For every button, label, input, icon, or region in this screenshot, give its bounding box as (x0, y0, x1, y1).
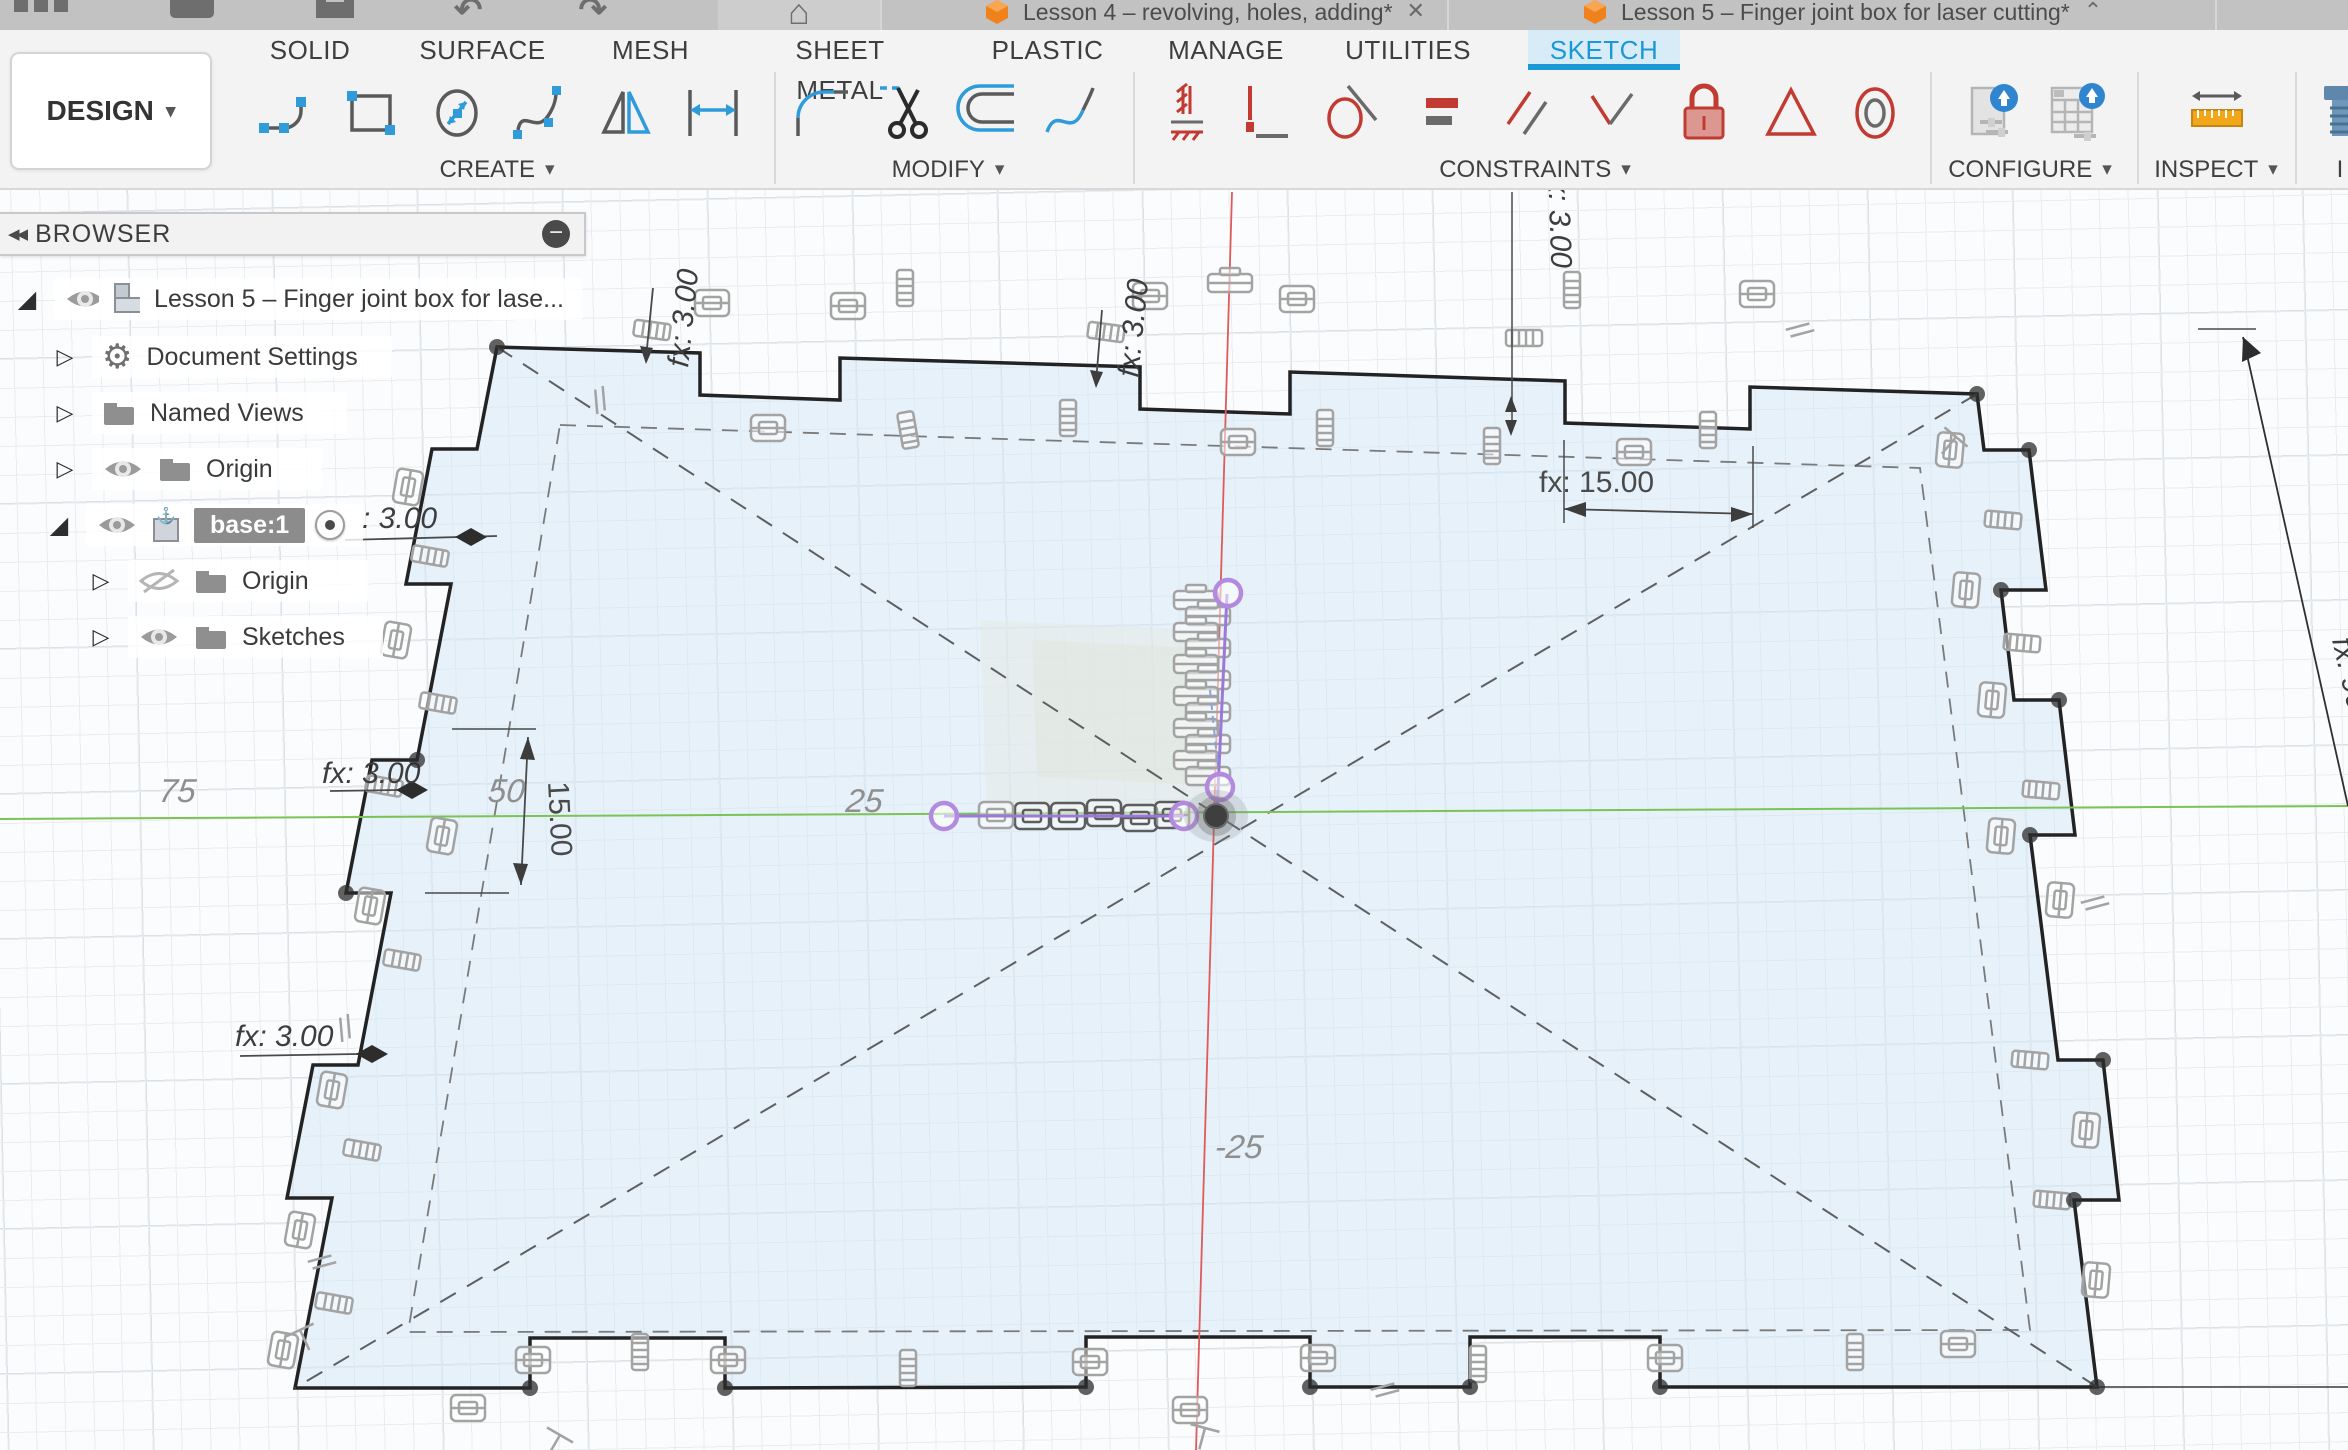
gear-icon: ⚙ (102, 340, 132, 374)
break-curve-icon[interactable] (1037, 80, 1103, 146)
browser-row-base-origin[interactable]: ▷ Origin (88, 560, 368, 602)
line-tool-icon[interactable] (254, 80, 320, 146)
document-icon (1583, 0, 1607, 25)
caret-down-icon: ▾ (166, 100, 176, 123)
eye-icon[interactable] (96, 510, 138, 540)
configure-group-label[interactable]: CONFIGURE▾ (1930, 154, 2130, 186)
row-label: Named Views (150, 399, 304, 428)
tab-plastic[interactable]: PLASTIC (990, 30, 1105, 70)
browser-row-base-component[interactable]: ◢ ⚓ base:1 (46, 504, 363, 546)
group-divider (774, 72, 776, 184)
tab-solid[interactable]: SOLID (255, 30, 365, 70)
expand-icon[interactable]: ◢ (46, 511, 72, 540)
browser-header[interactable]: ◀◀ BROWSER − (0, 212, 586, 256)
inspect-group-label[interactable]: INSPECT▾ (2126, 154, 2306, 186)
root-label: Lesson 5 – Finger joint box for lase... (154, 285, 564, 314)
tab-mesh[interactable]: MESH (603, 30, 698, 70)
sketch-geometry: fx: 3.00 fx: 3.00 fx: 3.00 fx: 15.00 fx (0, 190, 2348, 1450)
component-icon (113, 282, 140, 316)
ribbon-toolbar: SOLID SURFACE MESH SHEET METAL PLASTIC M… (0, 30, 2348, 190)
redo-icon[interactable]: ↷ (579, 0, 608, 30)
browser-row-document-settings[interactable]: ▷ ⚙ Document Settings (52, 336, 392, 378)
save-icon[interactable] (312, 0, 358, 30)
svg-text:⚓: ⚓ (156, 507, 176, 525)
configuration-table-icon[interactable] (2044, 80, 2110, 146)
document-tab-lesson4[interactable]: Lesson 4 – revolving, holes, adding* ✕ (985, 0, 1435, 30)
modify-group-label[interactable]: MODIFY▾ (848, 154, 1048, 186)
group-label-text: CONFIGURE (1948, 154, 2092, 186)
caret-down-icon: ▾ (2268, 154, 2278, 186)
group-label-text: MODIFY (892, 154, 985, 186)
browser-row-named-views[interactable]: ▷ Named Views (52, 392, 347, 434)
sketch-canvas-viewport[interactable]: fx: 3.00 fx: 3.00 fx: 3.00 fx: 15.00 fx (0, 190, 2348, 1450)
lock-constraint-icon[interactable] (1672, 80, 1738, 146)
offset-tool-icon[interactable] (956, 80, 1022, 146)
group-label-text: CREATE (439, 154, 535, 186)
spline-tool-icon[interactable] (508, 80, 574, 146)
folder-icon (194, 567, 228, 595)
folder-icon (158, 455, 192, 483)
grid-label-25: 25 (843, 783, 885, 820)
eye-off-icon[interactable] (138, 566, 180, 596)
grid-label-50: 50 (486, 773, 527, 810)
document-tab-lesson5[interactable]: Lesson 5 – Finger joint box for laser cu… (1583, 0, 2223, 30)
tab-separator (2215, 0, 2217, 30)
trim-tool-icon[interactable] (872, 80, 938, 146)
caret-down-icon: ▾ (2102, 154, 2112, 186)
workspace-label: DESIGN (47, 95, 154, 127)
origin-point[interactable] (1184, 790, 1248, 842)
document-icon (985, 0, 1009, 25)
browser-title: BROWSER (35, 220, 542, 249)
insert-group-label[interactable]: I (2320, 154, 2348, 186)
circle-tool-icon[interactable] (424, 80, 490, 146)
tab-manage[interactable]: MANAGE (1166, 30, 1286, 70)
insert-bolt-icon[interactable] (2316, 80, 2348, 146)
caret-down-icon: ▾ (1621, 154, 1631, 186)
folder-icon (102, 399, 136, 427)
undo-icon[interactable]: ↶ (454, 0, 483, 30)
document-tab-title: Lesson 5 – Finger joint box for laser cu… (1621, 0, 2070, 26)
active-component-label[interactable]: base:1 (194, 508, 305, 543)
row-label: Origin (206, 455, 273, 484)
rectangle-tool-icon[interactable] (340, 80, 406, 146)
collapse-panel-icon[interactable]: ◀◀ (0, 225, 35, 243)
concentric-constraint-icon[interactable] (1842, 80, 1908, 146)
svg-text:: 3.00: : 3.00 (362, 502, 437, 535)
collapsed-icon[interactable]: ▷ (52, 344, 78, 370)
eye-icon[interactable] (102, 454, 144, 484)
caret-down-icon: ▾ (995, 154, 1005, 186)
sketch-dimension-icon[interactable] (680, 80, 746, 146)
svg-text:fx: 3.00: fx: 3.00 (1112, 277, 1155, 379)
collapsed-icon[interactable]: ▷ (52, 456, 78, 482)
collapsed-icon[interactable]: ▷ (52, 400, 78, 426)
grid-label-75: 75 (157, 773, 198, 810)
row-label: Origin (242, 567, 309, 596)
create-group-label[interactable]: CREATE▾ (397, 154, 597, 186)
fillet-tool-icon[interactable] (790, 80, 856, 146)
expand-icon[interactable]: ◢ (14, 285, 40, 314)
group-divider (1133, 72, 1135, 184)
svg-text:fx: 3.00: fx: 3.00 (1541, 190, 1577, 269)
eye-icon[interactable] (138, 622, 180, 652)
tab-surface[interactable]: SURFACE (415, 30, 550, 70)
dimension-top-left[interactable]: fx: 3.00 (640, 267, 705, 369)
measure-tool-icon[interactable] (2184, 80, 2250, 146)
tab-menu-icon[interactable]: ⌃ (2084, 0, 2102, 24)
collapsed-icon[interactable]: ▷ (88, 624, 114, 650)
browser-row-origin[interactable]: ▷ Origin (52, 448, 322, 490)
folder-icon (194, 623, 228, 651)
vertical-horizontal-constraint-icon[interactable] (1232, 80, 1298, 146)
home-icon: ⌂ (788, 0, 810, 30)
tab-separator (880, 0, 882, 30)
tangent-constraint-icon[interactable] (1318, 80, 1384, 146)
app-grid-icon[interactable] (14, 0, 72, 30)
tab-sketch[interactable]: SKETCH (1528, 30, 1680, 70)
grounded-component-icon: ⚓ (148, 507, 184, 543)
perpendicular-constraint-icon[interactable] (1582, 80, 1648, 146)
workspace-selector[interactable]: DESIGN ▾ (10, 52, 212, 170)
fix-constraint-icon[interactable] (1157, 80, 1223, 146)
caret-down-icon: ▾ (545, 154, 555, 186)
constraints-group-label[interactable]: CONSTRAINTS▾ (1425, 154, 1645, 186)
group-divider (2295, 72, 2297, 184)
equal-constraint-icon[interactable] (1412, 80, 1478, 146)
svg-text:fx: 3.00: fx: 3.00 (235, 1020, 334, 1053)
minimize-panel-icon[interactable]: − (542, 220, 570, 248)
close-tab-icon[interactable]: ✕ (1407, 0, 1425, 24)
tab-sheet-metal[interactable]: SHEET METAL (750, 30, 930, 70)
tab-separator (1447, 0, 1449, 30)
configure-document-icon[interactable] (1960, 80, 2026, 146)
row-label: Document Settings (146, 343, 357, 372)
svg-text:fx: 90.00: fx: 90.00 (2325, 634, 2348, 754)
document-tab-title: Lesson 4 – revolving, holes, adding* (1023, 0, 1393, 26)
window-title-bar: ↶ ↷ ⌂ Lesson 4 – revolving, holes, addin… (0, 0, 2348, 30)
parallel-constraint-icon[interactable] (1496, 80, 1562, 146)
collapsed-icon[interactable]: ▷ (88, 568, 114, 594)
mirror-tool-icon[interactable] (596, 80, 662, 146)
svg-text:fx: 3.00: fx: 3.00 (322, 757, 421, 790)
activate-component-radio[interactable] (315, 510, 345, 540)
browser-row-sketches[interactable]: ▷ Sketches (88, 616, 383, 658)
group-label-text: INSPECT (2154, 154, 2258, 186)
browser-row-root[interactable]: ◢ Lesson 5 – Finger joint box for lase..… (14, 278, 582, 320)
row-label: Sketches (242, 623, 345, 652)
tab-utilities[interactable]: UTILITIES (1343, 30, 1473, 70)
svg-text:fx: 15.00: fx: 15.00 (1539, 466, 1654, 499)
file-home-button[interactable]: ⌂ (718, 0, 880, 30)
svg-text:15.00: 15.00 (541, 781, 578, 858)
group-label-text: CONSTRAINTS (1439, 154, 1611, 186)
symmetry-constraint-icon[interactable] (1758, 80, 1824, 146)
eye-icon[interactable] (64, 284, 99, 314)
quick-access-toolbar: ↶ ↷ (0, 0, 607, 30)
data-panel-icon[interactable] (168, 0, 216, 30)
ribbon-tab-row: SOLID SURFACE MESH SHEET METAL PLASTIC M… (0, 30, 2348, 70)
dimension-right-height[interactable]: fx: 90.00 (2198, 329, 2348, 806)
grid-label-neg25: -25 (1213, 1129, 1265, 1166)
group-label-text: I (2337, 154, 2344, 186)
